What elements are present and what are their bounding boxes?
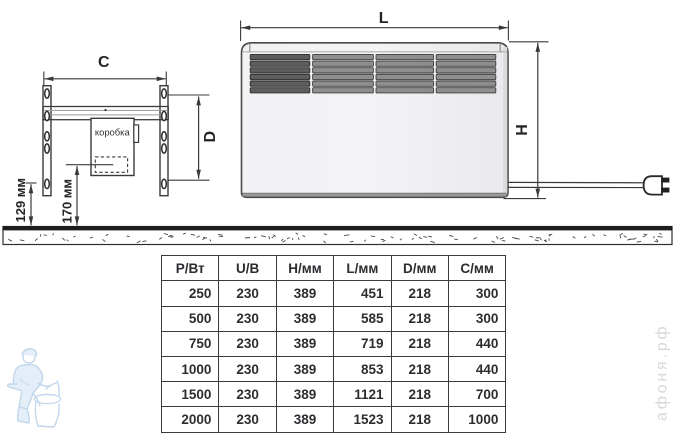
svg-text:170 мм: 170 мм — [60, 179, 75, 224]
svg-text:129 мм: 129 мм — [13, 178, 28, 223]
svg-text:коробка: коробка — [95, 126, 131, 137]
svg-text:афоня.рф: афоня.рф — [654, 324, 671, 421]
svg-text:C: C — [98, 54, 110, 71]
svg-text:L: L — [379, 10, 389, 27]
svg-text:D: D — [202, 131, 219, 143]
svg-text:H: H — [514, 124, 531, 136]
